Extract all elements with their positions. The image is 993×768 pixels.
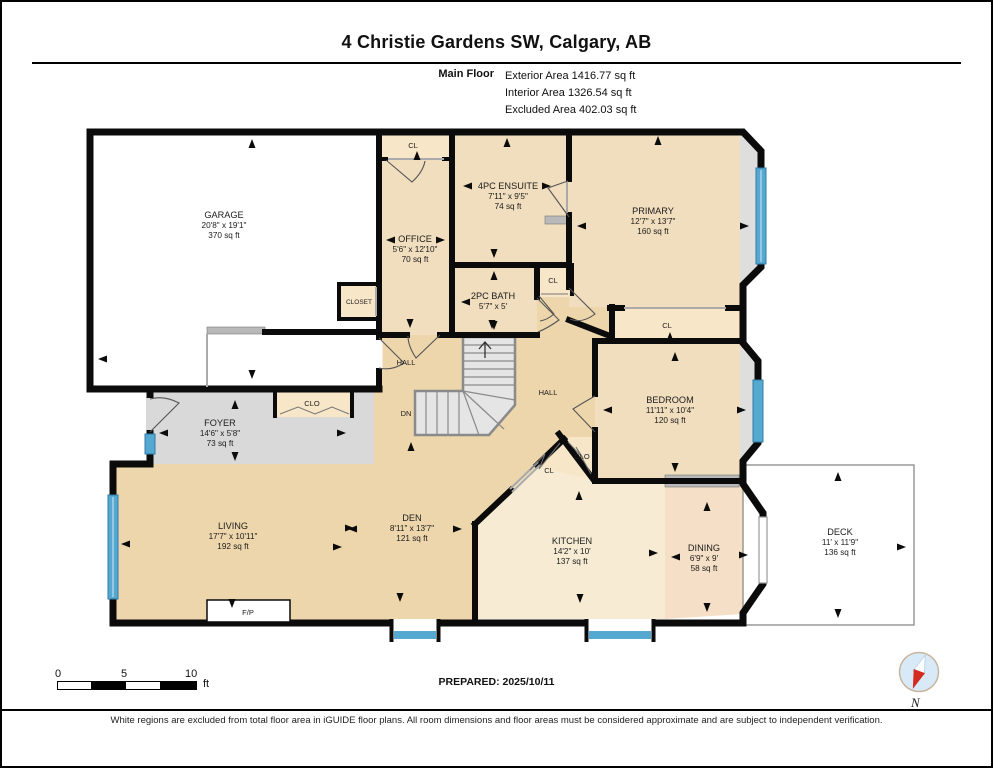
prepared-date: PREPARED: 2025/10/11 — [2, 676, 991, 688]
den-window — [394, 631, 436, 639]
small-label-f-p: F/P — [242, 608, 254, 617]
primary-closet-area — [612, 307, 743, 339]
ensuite-vanity — [545, 216, 568, 224]
floorplan-page: 4 Christie Gardens SW, Calgary, AB Main … — [0, 0, 993, 768]
room-label-kitchen: KITCHEN14'2" x 10'137 sq ft — [552, 536, 592, 566]
small-label-clo: CLO — [574, 452, 590, 461]
small-label-hall: HALL — [539, 388, 558, 397]
kitchen-window — [589, 631, 651, 639]
small-label-hall: HALL — [397, 358, 416, 367]
floor-plan-svg: GARAGE20'8" x 19'1"370 sq ftOFFICE5'6" x… — [2, 2, 993, 768]
room-label-deck: DECK11' x 11'9"136 sq ft — [822, 527, 858, 557]
compass-n-label: N — [910, 695, 921, 710]
room-label-dining: DINING6'9" x 9'58 sq ft — [688, 543, 720, 573]
small-label-closet: CLOSET — [346, 299, 372, 306]
small-label-cl: CL — [548, 276, 558, 285]
foyer-window — [145, 434, 155, 454]
garage-step — [207, 327, 265, 334]
small-label-cl: CL — [408, 141, 418, 150]
small-label-cl: CL — [544, 466, 554, 475]
footer-divider — [2, 709, 991, 711]
dining-bay-window — [759, 517, 767, 583]
compass-icon: N — [896, 650, 942, 712]
disclaimer-text: White regions are excluded from total fl… — [2, 715, 991, 726]
bedroom-window — [753, 380, 763, 442]
porch-area — [207, 332, 379, 389]
small-label-cl: CL — [662, 321, 672, 330]
small-label-clo: CLO — [304, 399, 320, 408]
small-label-dn: DN — [401, 409, 412, 418]
